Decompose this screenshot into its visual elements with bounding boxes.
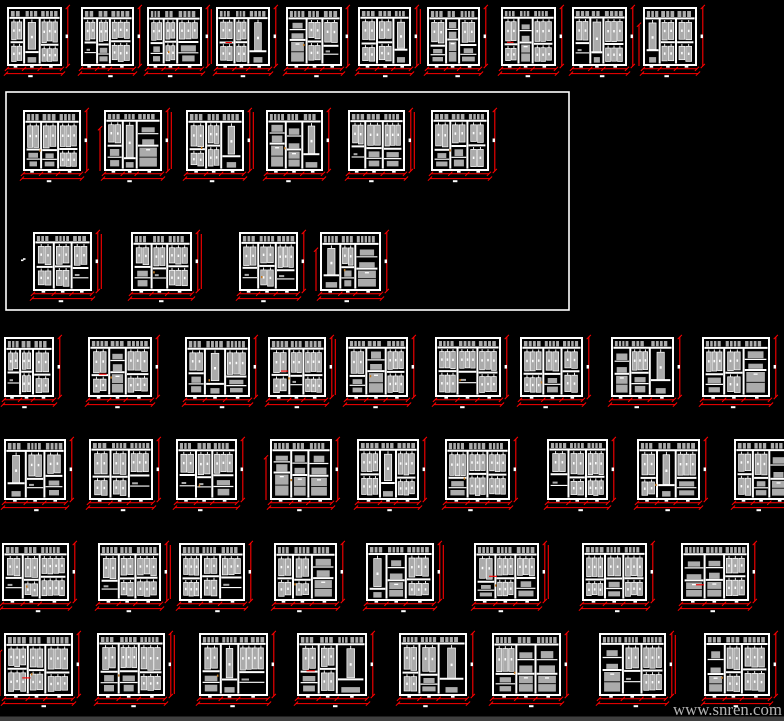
svg-text:www.snren.com: www.snren.com — [673, 700, 782, 719]
